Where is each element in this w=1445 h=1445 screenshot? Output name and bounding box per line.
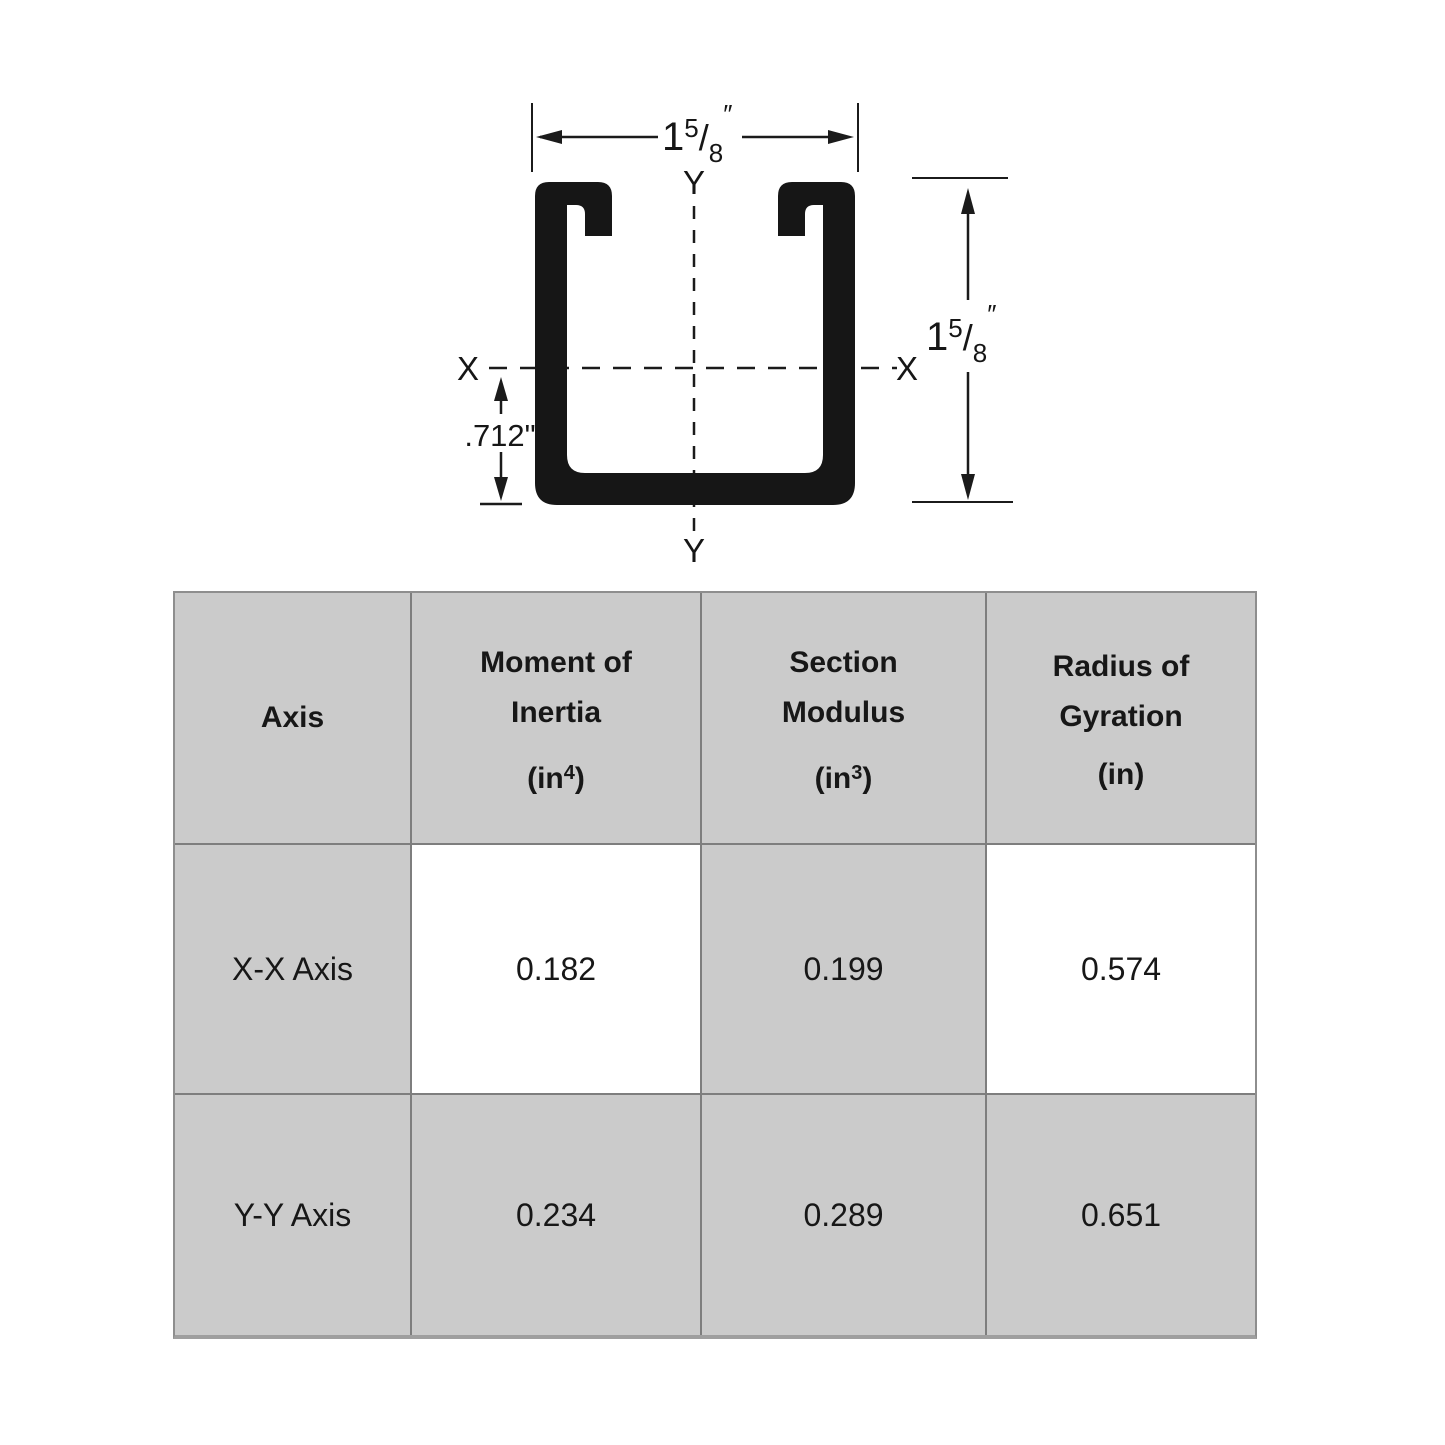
yy-section-modulus-value: 0.289 (700, 1093, 985, 1335)
row-xx-axis-label: X-X Axis (175, 843, 410, 1093)
y-axis-label-top: Y (683, 164, 705, 201)
yy-moment-of-inertia-value: 0.234 (410, 1093, 700, 1335)
row-yy-axis-label: Y-Y Axis (175, 1093, 410, 1335)
offset-dimension-label: .712" (464, 418, 535, 453)
width-dimension-label: 15/8″ (662, 99, 732, 168)
yy-radius-of-gyration-value: 0.651 (985, 1093, 1255, 1335)
section-properties-table: Axis Moment of Inertia (in4) Section Mod… (173, 591, 1257, 1339)
xx-radius-of-gyration-value: 0.574 (985, 843, 1255, 1093)
arrowhead-up (961, 188, 975, 214)
xx-moment-of-inertia-value: 0.182 (410, 843, 700, 1093)
header-axis: Axis (175, 593, 410, 843)
x-axis-label-left: X (457, 350, 479, 387)
arrowhead-down (961, 474, 975, 500)
height-dimension-label: 15/8″ (926, 299, 996, 368)
arrowhead-right (828, 130, 854, 144)
strut-spec-sheet: 15/8″ 15/8″ .712" X X Y Y (0, 0, 1445, 1445)
xx-section-modulus-value: 0.199 (700, 843, 985, 1093)
arrowhead-up (494, 377, 508, 401)
header-radius-of-gyration: Radius of Gyration (in) (985, 593, 1255, 843)
strut-cross-section-diagram: 15/8″ 15/8″ .712" X X Y Y (0, 0, 1445, 580)
y-axis-label-bottom: Y (683, 532, 705, 569)
x-axis-label-right: X (896, 350, 918, 387)
arrowhead-left (536, 130, 562, 144)
header-moment-of-inertia: Moment of Inertia (in4) (410, 593, 700, 843)
arrowhead-down (494, 477, 508, 501)
header-section-modulus: Section Modulus (in3) (700, 593, 985, 843)
